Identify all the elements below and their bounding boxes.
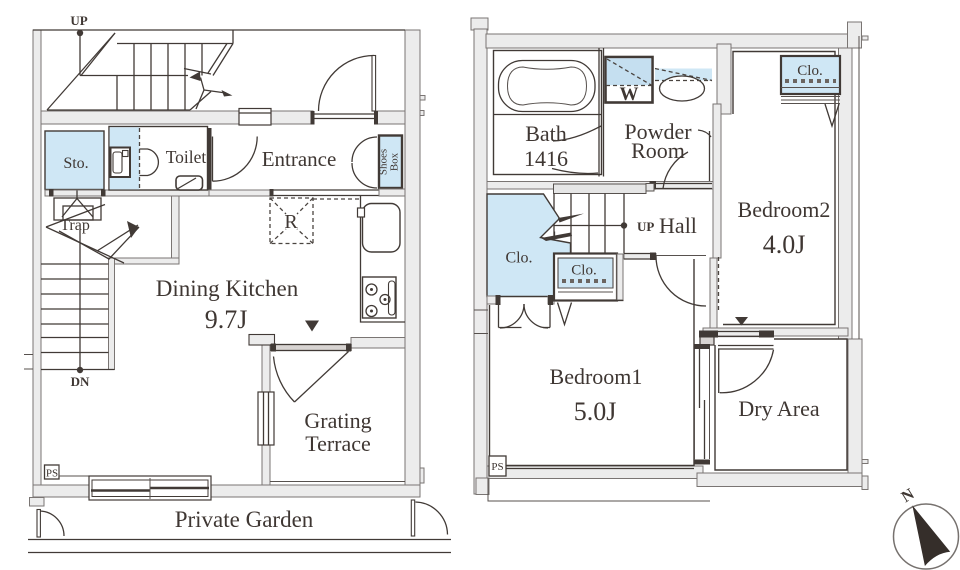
- svg-text:Box: Box: [389, 152, 401, 171]
- svg-text:R: R: [284, 211, 298, 233]
- svg-text:Dry Area: Dry Area: [738, 396, 819, 421]
- svg-text:Bath: Bath: [525, 121, 567, 146]
- svg-text:9.7J: 9.7J: [205, 305, 248, 334]
- svg-text:W: W: [620, 84, 639, 105]
- svg-text:Bedroom2: Bedroom2: [738, 197, 831, 222]
- svg-text:Trap: Trap: [60, 217, 90, 234]
- svg-text:5.0J: 5.0J: [574, 397, 617, 426]
- svg-text:Grating: Grating: [304, 408, 371, 433]
- svg-text:Hall: Hall: [659, 213, 697, 238]
- svg-text:Sto.: Sto.: [63, 155, 88, 172]
- svg-text:Clo.: Clo.: [571, 263, 596, 279]
- svg-text:PS: PS: [46, 468, 58, 480]
- svg-text:N: N: [899, 485, 918, 506]
- svg-text:Clo.: Clo.: [797, 63, 822, 79]
- svg-text:Clo.: Clo.: [505, 250, 532, 267]
- svg-text:PS: PS: [491, 461, 503, 473]
- svg-text:Terrace: Terrace: [305, 431, 371, 456]
- svg-text:UP: UP: [70, 13, 87, 28]
- svg-text:1416: 1416: [524, 146, 568, 171]
- svg-text:UP: UP: [637, 219, 654, 234]
- svg-text:Toilet: Toilet: [166, 147, 207, 167]
- svg-text:4.0J: 4.0J: [763, 230, 806, 259]
- svg-text:DN: DN: [71, 374, 90, 389]
- svg-text:Bedroom1: Bedroom1: [550, 364, 643, 389]
- svg-text:Entrance: Entrance: [262, 147, 337, 171]
- svg-text:Room: Room: [631, 138, 685, 163]
- svg-text:Private Garden: Private Garden: [175, 507, 314, 532]
- svg-text:Dining Kitchen: Dining Kitchen: [156, 276, 299, 301]
